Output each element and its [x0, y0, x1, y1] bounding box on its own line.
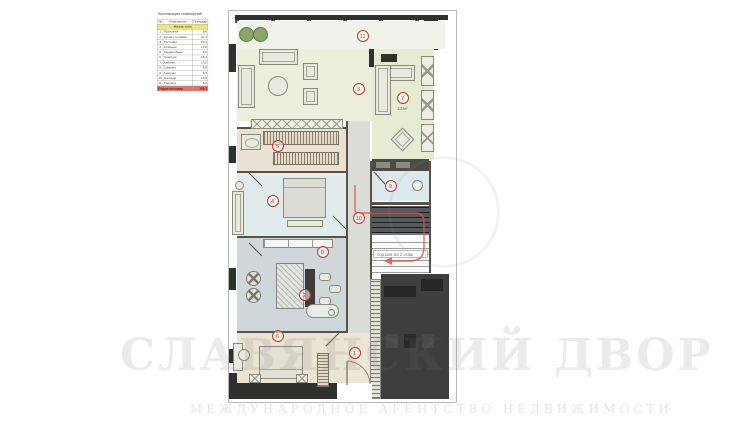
- desk-chair: [238, 349, 250, 361]
- floor-plan: подъем на 2 этаж 13 м² 1137549108261: [228, 10, 457, 403]
- room-marker: 9: [385, 180, 397, 192]
- room-marker: 2: [299, 289, 311, 301]
- wall-pilaster: [229, 44, 236, 72]
- nightstand: [249, 374, 261, 383]
- wall-interior: [372, 202, 429, 205]
- chair: [246, 271, 261, 286]
- wardrobe: [317, 353, 329, 387]
- clothes-rack: [273, 152, 339, 165]
- wall-stub: [369, 49, 374, 67]
- dark-zone-shape: [422, 334, 434, 348]
- wall-interior: [237, 331, 346, 333]
- plant-icon: [253, 27, 268, 42]
- stove: [305, 269, 315, 307]
- room-marker: 11: [357, 30, 369, 42]
- legend-total-row: Общая площадь163,1: [157, 86, 208, 91]
- room-marker: 5: [272, 140, 284, 152]
- sink: [412, 180, 423, 191]
- legend-title: Экспликация помещений: [157, 12, 208, 16]
- chair: [329, 285, 341, 293]
- wall-lintel: [381, 54, 397, 62]
- armchair: [303, 63, 318, 80]
- bed-bench: [287, 220, 323, 227]
- room-living: [237, 49, 372, 121]
- chair: [319, 273, 331, 281]
- nightstand: [296, 374, 308, 383]
- sofa: [259, 49, 298, 65]
- bed: [283, 178, 326, 218]
- bathtub: [306, 304, 339, 318]
- room-marker: 10: [353, 212, 365, 224]
- wall-interior: [429, 161, 431, 273]
- chair: [246, 288, 261, 303]
- wall-interior: [346, 121, 348, 333]
- room-marker: 3: [353, 83, 365, 95]
- room-terrace: [237, 21, 445, 49]
- wardrobe-strip: [251, 119, 343, 129]
- wardrobe: [421, 124, 434, 152]
- room-marker: 7: [397, 92, 409, 104]
- wardrobe: [421, 56, 434, 86]
- wall-interior: [237, 171, 346, 173]
- stairs-upper-flight: [372, 206, 429, 233]
- room-marker: 4: [267, 195, 279, 207]
- legend-body: № Помещение Площадь Жилая зона1Прихожая9…: [157, 19, 208, 91]
- stairs-landing-line: [372, 233, 429, 235]
- sofa: [232, 191, 244, 235]
- room-marker: 1: [349, 347, 361, 359]
- shaft: [370, 279, 381, 399]
- wall-pilaster: [229, 268, 236, 290]
- room-marker: 8: [317, 246, 329, 258]
- entrance-opening: [346, 383, 372, 400]
- dark-zone-shape: [384, 286, 416, 297]
- dark-zone-shape: [421, 279, 443, 291]
- room-hall: [346, 333, 372, 383]
- wall-interior: [237, 236, 346, 238]
- plant-icon: [239, 27, 254, 42]
- stairs-label: подъем на 2 этаж: [377, 252, 413, 257]
- stool: [235, 181, 244, 190]
- legend-table: № Помещение Площадь Жилая зона1Прихожая9…: [157, 19, 208, 91]
- dresser: [241, 134, 261, 150]
- wall-pilaster: [229, 146, 236, 163]
- dining-table: [276, 263, 304, 309]
- watermark-subtitle: МЕЖДУНАРОДНОЕ АГЕНТСТВО НЕДВИЖИМОСТИ: [190, 402, 550, 416]
- sofa: [238, 65, 255, 108]
- storage-band: [372, 159, 429, 171]
- room-marker: 6: [272, 330, 284, 342]
- stairs-label-band: подъем на 2 этаж: [373, 250, 428, 258]
- coffee-table: [268, 76, 288, 96]
- dark-zone-shape: [404, 334, 416, 348]
- wardrobe: [421, 90, 434, 120]
- armchair: [303, 88, 318, 105]
- dark-zone-shape: [386, 334, 398, 348]
- area-label: 13 м²: [397, 106, 408, 111]
- corner-sofa: [375, 65, 391, 115]
- room-corridor: [348, 121, 370, 333]
